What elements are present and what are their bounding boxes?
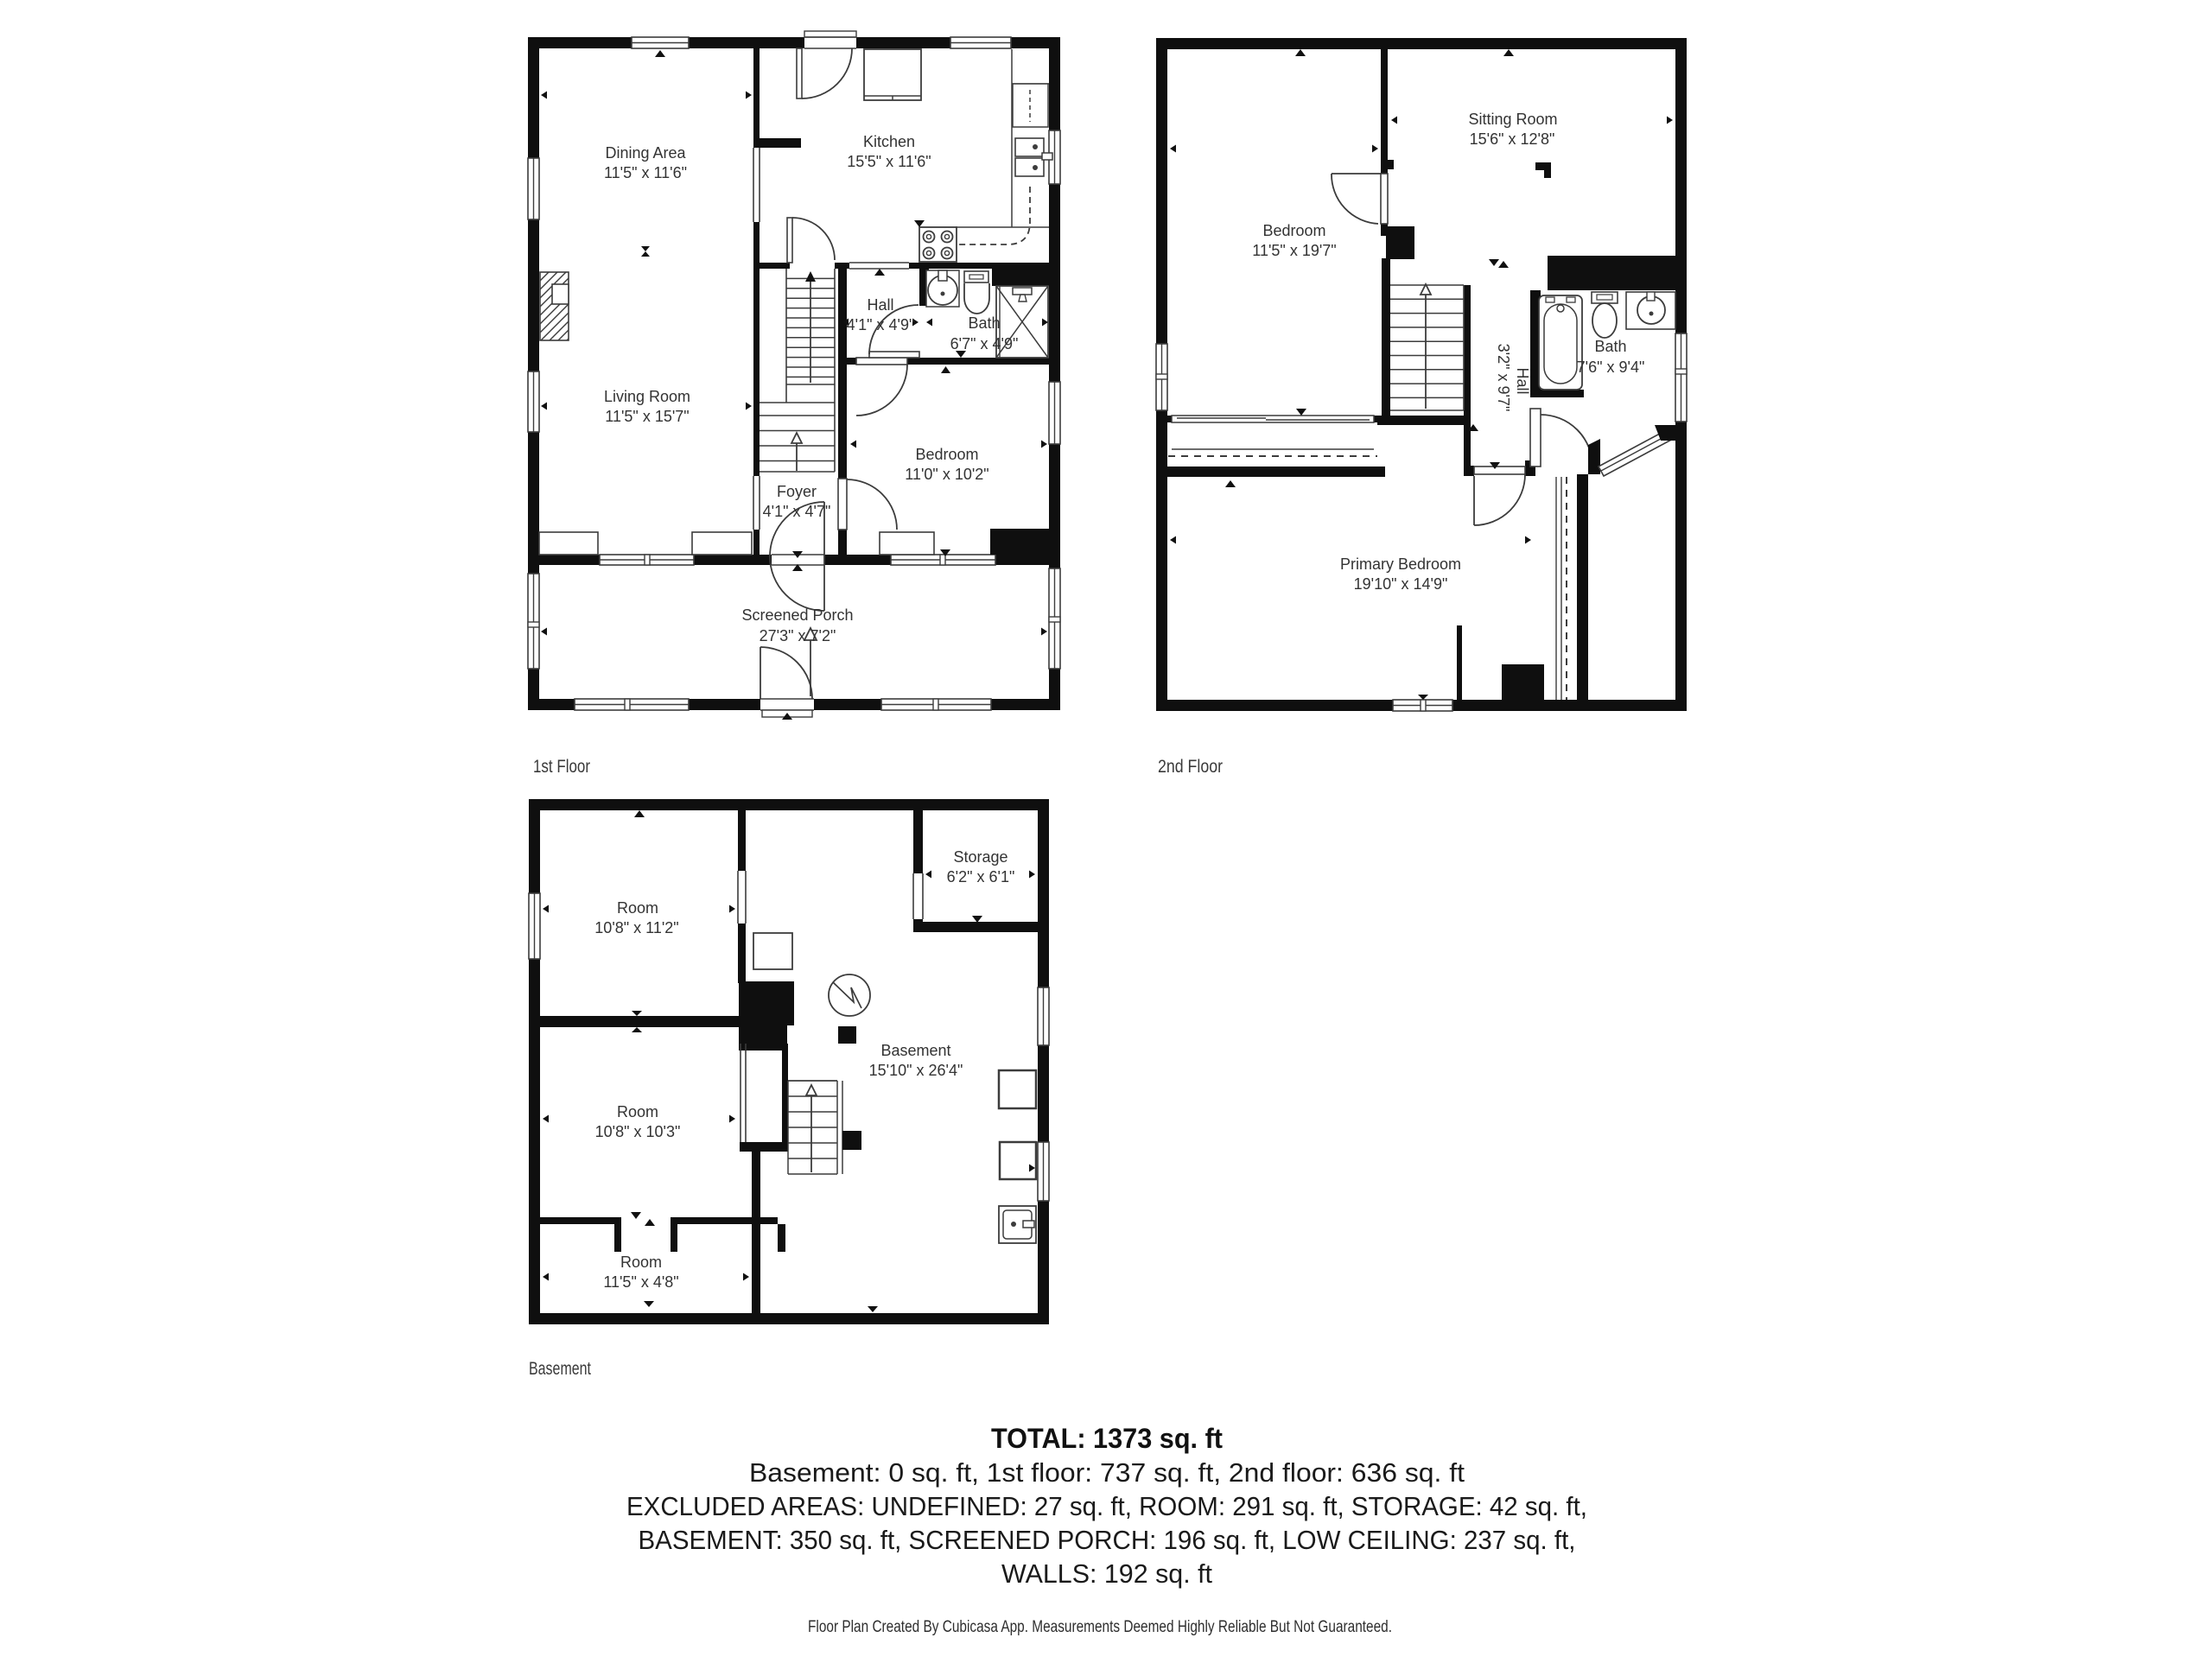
svg-text:7'6" x 9'4": 7'6" x 9'4" <box>1577 359 1645 376</box>
svg-text:11'5" x 4'8": 11'5" x 4'8" <box>603 1273 678 1291</box>
svg-text:1st Floor: 1st Floor <box>533 757 590 777</box>
svg-text:Kitchen: Kitchen <box>863 133 915 150</box>
svg-text:11'5" x 15'7": 11'5" x 15'7" <box>605 408 689 425</box>
svg-text:10'8" x 11'2": 10'8" x 11'2" <box>594 919 678 936</box>
svg-text:Primary Bedroom: Primary Bedroom <box>1340 555 1461 573</box>
svg-text:Screened Porch: Screened Porch <box>741 606 853 624</box>
svg-text:10'8" x 10'3": 10'8" x 10'3" <box>595 1123 681 1140</box>
svg-text:Living Room: Living Room <box>604 388 690 405</box>
svg-text:6'2" x 6'1": 6'2" x 6'1" <box>947 868 1015 885</box>
svg-text:Hall: Hall <box>1514 367 1531 394</box>
svg-text:Storage: Storage <box>953 848 1007 866</box>
svg-text:Room: Room <box>617 899 658 917</box>
svg-text:Hall: Hall <box>867 296 893 314</box>
svg-text:Dining Area: Dining Area <box>605 144 686 162</box>
svg-text:19'10" x 14'9": 19'10" x 14'9" <box>1354 575 1448 593</box>
svg-text:TOTAL: 1373 sq. ft: TOTAL: 1373 sq. ft <box>991 1423 1223 1454</box>
svg-text:Foyer: Foyer <box>777 483 817 500</box>
svg-text:Basement: Basement <box>529 1359 591 1379</box>
svg-text:WALLS: 192 sq. ft: WALLS: 192 sq. ft <box>1001 1558 1212 1589</box>
svg-text:2nd Floor: 2nd Floor <box>1158 757 1223 777</box>
svg-text:Bedroom: Bedroom <box>1262 222 1325 239</box>
svg-text:Bedroom: Bedroom <box>915 446 978 463</box>
svg-text:BASEMENT: 350 sq. ft, SCREENED: BASEMENT: 350 sq. ft, SCREENED PORCH: 19… <box>639 1525 1576 1555</box>
svg-text:4'1" x 4'7": 4'1" x 4'7" <box>763 503 831 520</box>
svg-text:11'0" x 10'2": 11'0" x 10'2" <box>905 466 988 483</box>
svg-text:4'1" x 4'9": 4'1" x 4'9" <box>847 316 915 333</box>
svg-text:Room: Room <box>617 1103 658 1120</box>
svg-text:3'2" x 9'7": 3'2" x 9'7" <box>1495 344 1512 412</box>
svg-text:11'5" x 11'6": 11'5" x 11'6" <box>604 164 687 181</box>
svg-text:Bath: Bath <box>968 314 1000 332</box>
svg-text:15'6" x 12'8": 15'6" x 12'8" <box>1470 130 1555 148</box>
svg-text:EXCLUDED AREAS: UNDEFINED: 27: EXCLUDED AREAS: UNDEFINED: 27 sq. ft, RO… <box>626 1491 1587 1521</box>
svg-text:Sitting Room: Sitting Room <box>1468 111 1557 128</box>
svg-text:Bath: Bath <box>1594 338 1626 355</box>
svg-text:15'5" x 11'6": 15'5" x 11'6" <box>847 153 931 170</box>
svg-text:Floor Plan Created By Cubicasa: Floor Plan Created By Cubicasa App. Meas… <box>808 1618 1392 1636</box>
svg-text:11'5" x 19'7": 11'5" x 19'7" <box>1252 242 1336 259</box>
svg-text:6'7" x 4'9": 6'7" x 4'9" <box>950 335 1019 352</box>
svg-text:15'10" x 26'4": 15'10" x 26'4" <box>869 1062 963 1079</box>
svg-text:Room: Room <box>620 1254 662 1271</box>
svg-text:Basement: 0 sq. ft, 1st floor:: Basement: 0 sq. ft, 1st floor: 737 sq. f… <box>749 1457 1465 1488</box>
svg-text:27'3" x 7'2": 27'3" x 7'2" <box>760 627 836 644</box>
svg-text:Basement: Basement <box>880 1042 950 1059</box>
